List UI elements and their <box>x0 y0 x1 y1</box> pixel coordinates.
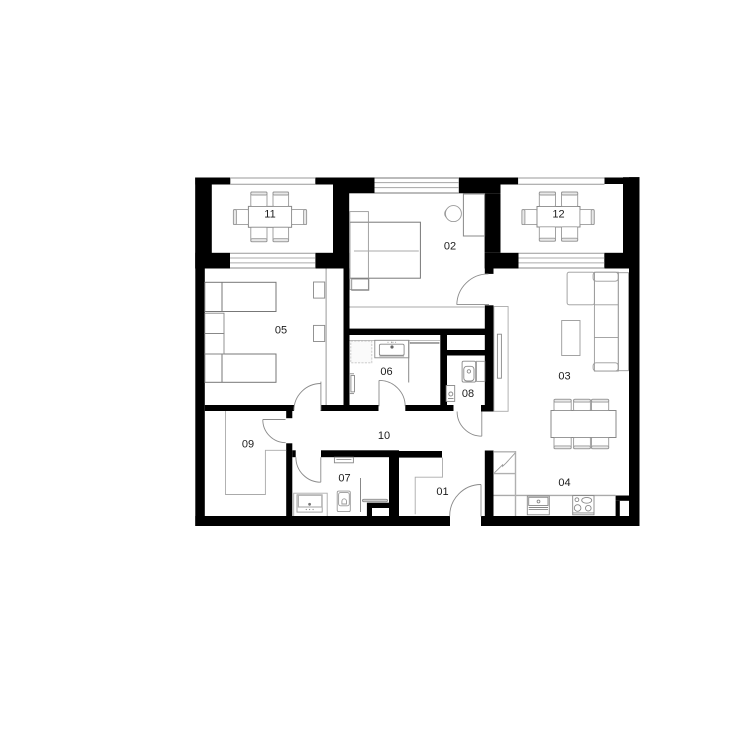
svg-text:06: 06 <box>380 366 392 378</box>
svg-text:07: 07 <box>338 473 350 485</box>
svg-text:04: 04 <box>558 477 570 489</box>
svg-text:01: 01 <box>436 486 448 498</box>
svg-text:05: 05 <box>275 325 287 337</box>
svg-text:11: 11 <box>264 209 275 221</box>
svg-text:09: 09 <box>242 439 254 451</box>
svg-text:02: 02 <box>444 241 456 253</box>
svg-text:08: 08 <box>462 388 474 400</box>
svg-text:12: 12 <box>552 209 564 221</box>
svg-text:10: 10 <box>378 430 390 442</box>
svg-text:03: 03 <box>558 371 570 383</box>
